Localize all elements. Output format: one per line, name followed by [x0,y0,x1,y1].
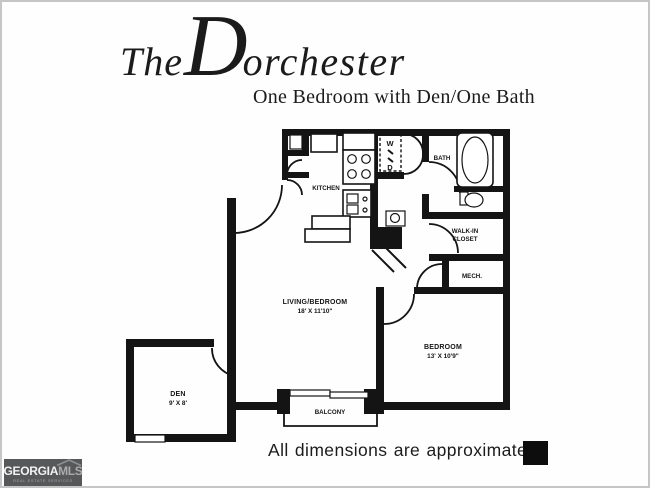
dryer-label: D [387,163,393,172]
entry-closet-door-arc-2 [287,180,302,195]
washer-label: W [386,139,394,148]
kitchen-peninsula [305,229,350,242]
mech-door-arc [417,264,442,289]
bath-label: BATH [434,155,451,162]
room-labels: KITCHEN W D BATH WALK-IN CLOSET MECH. LI… [169,139,482,416]
dimensions-disclaimer: All dimensions are approximate [268,440,527,461]
wd-slash [388,158,393,162]
toilet-bowl [465,193,483,207]
washer-dryer-door-arc-top [404,134,423,153]
living-bedroom-label: LIVING/BEDROOM [283,299,348,306]
stove-burner [362,170,371,179]
balcony-label: BALCONY [315,409,346,416]
living-bedroom-dimensions: 18' X 11'10" [298,308,333,315]
bedroom-dimensions: 13' X 10'9" [427,353,459,360]
sink-basin [347,194,358,203]
kitchen-counter [343,133,375,150]
logo-text-row: GEORGIA MLS [4,465,83,477]
walkin-closet-label-line1: WALK-IN [452,228,479,235]
bathtub-basin [462,137,488,183]
logo-tagline: REAL ESTATE SERVICES [13,478,73,483]
georgia-mls-logo: GEORGIA MLS REAL ESTATE SERVICES [4,459,82,488]
bedroom-door-arc [384,294,414,324]
refrigerator [311,134,337,152]
stove-burner [348,170,357,179]
logo-roof-icon [56,459,82,466]
logo-mls-text: MLS [58,465,82,477]
stove-burner [362,155,371,164]
legend-square [523,441,548,465]
sliding-door-panel [290,390,330,396]
den-label: DEN [170,391,185,398]
sink-faucet [363,197,367,201]
sink-faucet [363,208,367,212]
walkin-closet-label-line2: CLOSET [452,236,477,243]
logo-georgia-text: GEORGIA [4,465,59,477]
door-arcs [212,134,460,376]
den-window [135,435,165,442]
kitchen-label: KITCHEN [312,185,340,192]
stove [343,150,375,184]
bedroom-label: BEDROOM [424,344,462,351]
mech-label: MECH. [462,273,482,280]
logo-mls-letters: MLS [58,464,82,478]
floorplan-sheet: The D orchester One Bedroom with Den/One… [0,0,650,488]
entry-closet-shelf [290,135,302,149]
kitchen-peninsula [312,216,350,229]
stove-burner [348,155,357,164]
washer-dryer-door-arc-bottom [404,155,423,174]
sliding-door-panel [330,392,368,398]
wd-slash [388,150,393,154]
den-dimensions: 9' X 8' [169,400,187,407]
entry-door-arc [234,185,282,233]
hall-vanity-sink [391,214,400,223]
sink-basin [347,205,358,214]
floorplan-drawing: KITCHEN W D BATH WALK-IN CLOSET MECH. LI… [2,2,650,488]
